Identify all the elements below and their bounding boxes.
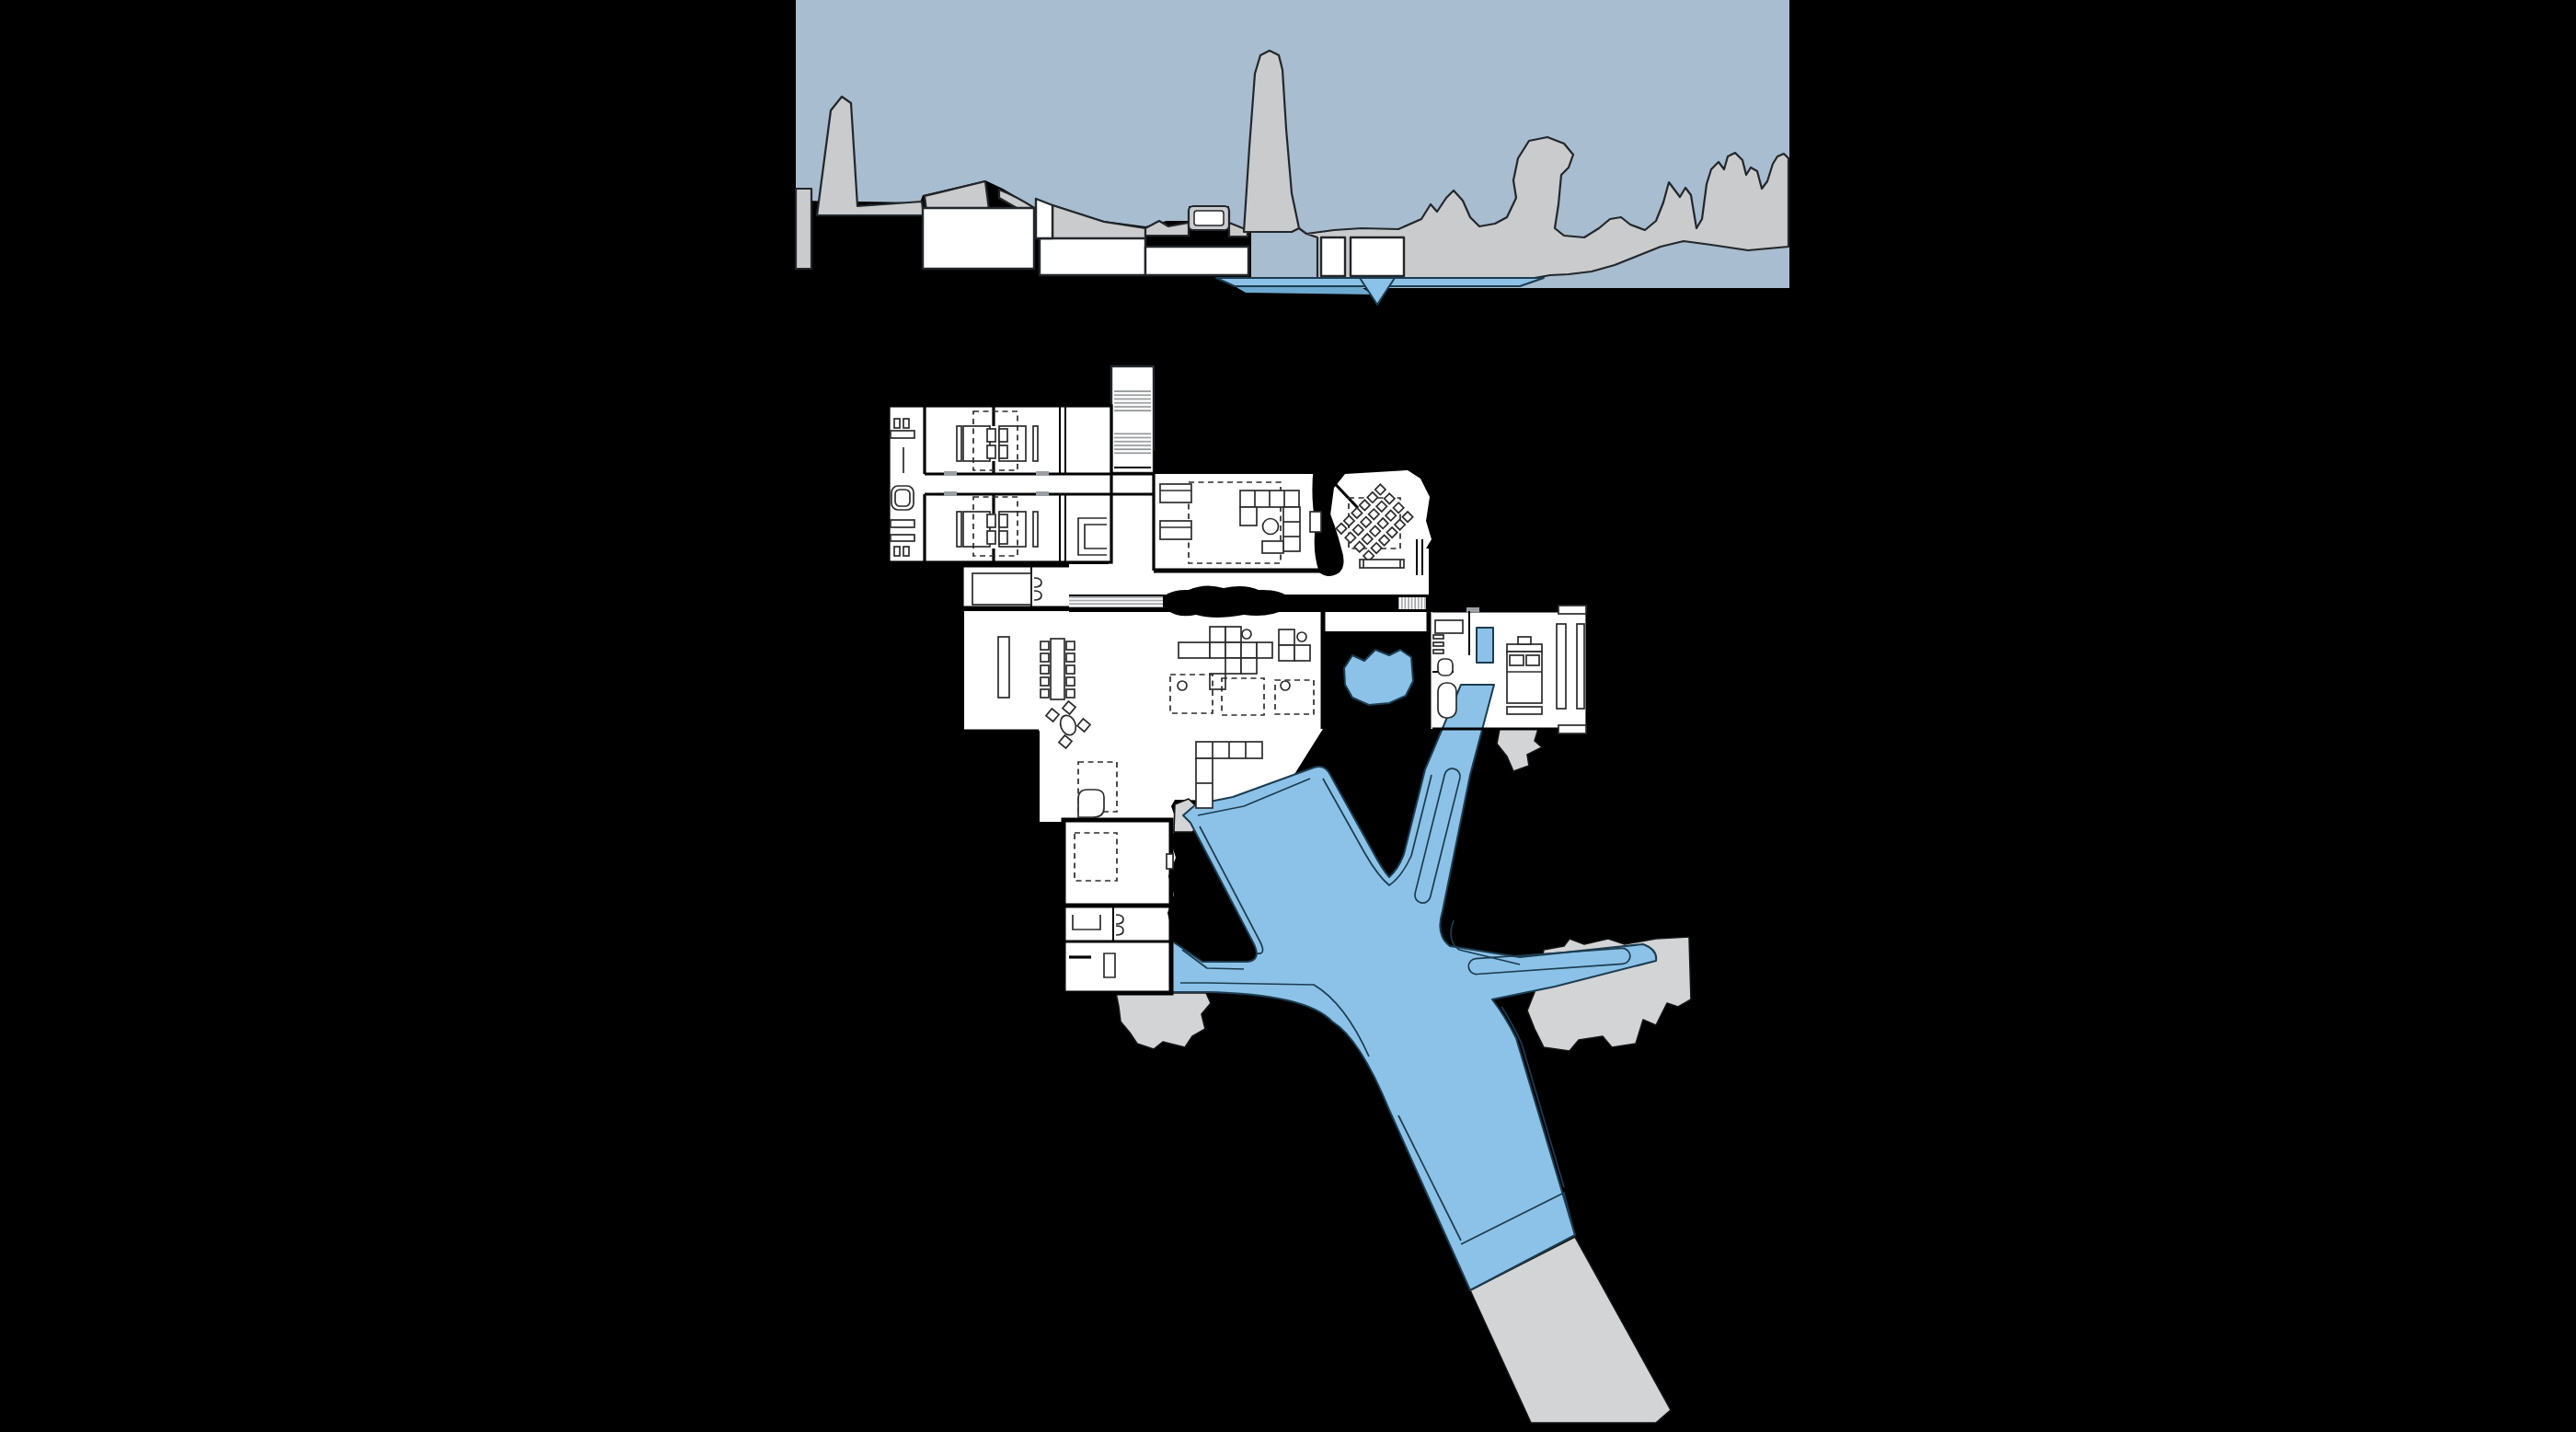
pillow-icon	[999, 531, 1007, 544]
sideboard-icon	[998, 637, 1009, 698]
stool-icon	[1297, 632, 1306, 641]
pillow-icon	[987, 531, 995, 544]
chair-icon	[1041, 689, 1049, 698]
pillow-icon	[987, 514, 995, 527]
section-skylight	[1189, 206, 1229, 230]
pillow-icon	[987, 445, 995, 458]
site-section	[796, 0, 1789, 305]
chair-icon	[1066, 653, 1075, 662]
stool-icon	[1281, 681, 1290, 690]
section-room-1	[923, 208, 1034, 269]
bed-bench-icon	[1507, 707, 1542, 714]
section-rock-left-sliver	[796, 189, 811, 269]
headboard-icon	[1507, 644, 1542, 652]
section-room-4	[1351, 237, 1404, 276]
bathtub-icon	[1438, 683, 1456, 718]
ottoman-icon	[1262, 541, 1283, 553]
closet-icon	[1435, 620, 1463, 633]
wc-icon	[891, 535, 914, 541]
piano-icon	[1078, 790, 1104, 817]
pillow-icon	[1526, 655, 1539, 665]
pillow-icon	[999, 429, 1007, 442]
wc-icon	[1438, 659, 1453, 676]
chair-icon	[1041, 677, 1049, 686]
beach-southwest	[1116, 993, 1211, 1049]
stair-tower	[1111, 366, 1154, 473]
pantry-block	[962, 564, 1069, 608]
stair-treads-lower	[1114, 433, 1151, 456]
tap-icon	[894, 419, 900, 428]
vanity-tick	[1433, 650, 1443, 653]
pillow-icon	[999, 514, 1007, 527]
bed-side-rail	[957, 426, 961, 461]
floor-plan	[889, 366, 1691, 1423]
terrace-bench-icon	[1360, 560, 1404, 568]
pillow-icon	[1510, 655, 1524, 665]
armchair-icon	[1160, 521, 1191, 539]
section-room-wedge	[1036, 199, 1052, 238]
bed-side-rail	[1033, 426, 1038, 461]
ramp-hatch-east	[1398, 597, 1426, 609]
side-table-icon	[1310, 512, 1321, 532]
chair-icon	[1066, 689, 1075, 698]
section-room-2	[1040, 238, 1145, 275]
wardrobe-icon	[1577, 624, 1584, 709]
wardrobe-icon	[1557, 624, 1566, 709]
drawing-svg	[0, 0, 2576, 1432]
chair-icon	[1066, 677, 1075, 686]
vanity-icon	[891, 431, 914, 438]
bed-icon	[963, 426, 990, 461]
tap-icon	[894, 547, 900, 556]
chair-icon	[1066, 641, 1075, 650]
architectural-drawing-canvas	[0, 0, 2576, 1432]
pillow-icon	[999, 445, 1007, 458]
headboard-lamp	[1518, 637, 1531, 644]
door-jamb	[1167, 854, 1173, 869]
vent-icon	[1558, 606, 1586, 614]
vanity-tick	[1433, 635, 1443, 639]
chair-icon	[1041, 653, 1049, 662]
chair-icon	[1041, 641, 1049, 650]
sofa-end-icon	[1240, 507, 1257, 525]
bed-icon	[963, 512, 990, 547]
tap-icon	[903, 547, 909, 556]
coffee-table-icon	[1263, 519, 1279, 535]
bed-side-rail	[957, 512, 961, 547]
tap-icon	[903, 419, 909, 428]
vent-icon	[1558, 725, 1586, 733]
grotto-pool	[1344, 650, 1413, 705]
armchair-icon	[1160, 484, 1191, 502]
pillow-icon	[987, 429, 995, 442]
stool-icon	[1178, 681, 1187, 690]
vanity-tick	[1433, 642, 1443, 646]
section-room-3	[1321, 237, 1345, 276]
section-pool-deep	[1235, 286, 1373, 294]
stair-treads-upper	[1114, 390, 1151, 413]
vanity-icon	[891, 520, 914, 527]
sofa-icon	[1283, 507, 1300, 551]
plunge-pool	[1477, 628, 1493, 663]
rock-blob-gallery	[1160, 585, 1292, 618]
rock-patch-suite	[1497, 729, 1542, 771]
chair-icon	[1041, 665, 1049, 674]
section-room-corridor	[1145, 247, 1248, 275]
dining-table-icon	[1051, 639, 1064, 699]
ramp-hatch-west	[1069, 596, 1163, 607]
stool-icon	[1242, 629, 1251, 639]
chair-icon	[1066, 665, 1075, 674]
section-pool	[1216, 278, 1544, 305]
living-room-north-wall	[1154, 451, 1334, 474]
bed-side-rail	[1033, 512, 1038, 547]
